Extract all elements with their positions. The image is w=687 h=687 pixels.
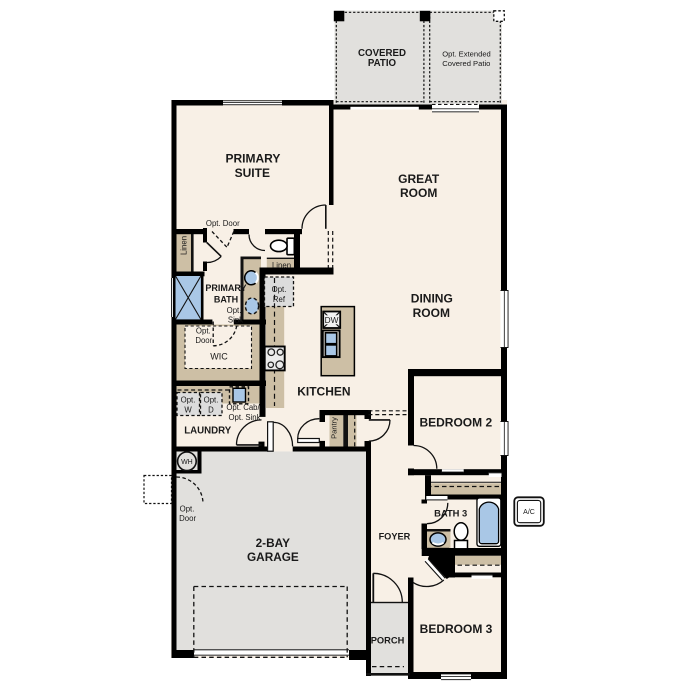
svg-text:GREAT: GREAT: [398, 172, 440, 186]
svg-text:Ref: Ref: [273, 295, 286, 304]
svg-text:Opt.: Opt.: [272, 285, 287, 294]
svg-text:Opt. Sink: Opt. Sink: [228, 413, 260, 422]
svg-text:FOYER: FOYER: [379, 532, 411, 542]
svg-text:W: W: [184, 406, 192, 415]
svg-text:SUITE: SUITE: [235, 166, 270, 180]
svg-text:PRIMARY: PRIMARY: [205, 283, 246, 293]
svg-text:Pantry: Pantry: [330, 417, 339, 439]
svg-text:BEDROOM 2: BEDROOM 2: [419, 416, 492, 430]
svg-text:Opt. Door: Opt. Door: [206, 219, 240, 228]
svg-text:D: D: [208, 406, 214, 415]
svg-text:Opt. Cab/: Opt. Cab/: [226, 403, 260, 412]
svg-text:PRIMARY: PRIMARY: [225, 152, 280, 166]
svg-text:DINING: DINING: [411, 292, 453, 306]
svg-text:Opt. Extended: Opt. Extended: [442, 49, 491, 58]
svg-text:Opt.: Opt.: [196, 326, 211, 335]
svg-text:BEDROOM 3: BEDROOM 3: [420, 622, 493, 636]
svg-text:ROOM: ROOM: [413, 306, 450, 320]
svg-text:WH: WH: [181, 459, 193, 466]
svg-text:Sink: Sink: [228, 316, 243, 325]
svg-text:2-BAY: 2-BAY: [256, 536, 290, 550]
svg-text:Linen: Linen: [180, 236, 189, 255]
svg-text:KITCHEN: KITCHEN: [297, 384, 350, 398]
svg-text:Door: Door: [179, 514, 196, 523]
svg-text:GARAGE: GARAGE: [247, 550, 299, 564]
svg-text:Door: Door: [195, 336, 212, 345]
svg-text:Covered Patio: Covered Patio: [442, 59, 490, 68]
svg-text:A/C: A/C: [523, 509, 535, 516]
svg-text:Opt.: Opt.: [227, 306, 242, 315]
svg-text:BATH 3: BATH 3: [434, 508, 467, 519]
svg-text:Opt.: Opt.: [181, 396, 196, 405]
svg-text:ROOM: ROOM: [400, 186, 437, 200]
svg-text:WIC: WIC: [210, 352, 228, 362]
svg-text:LAUNDRY: LAUNDRY: [184, 426, 232, 437]
svg-text:Opt.: Opt.: [180, 505, 195, 514]
svg-text:Linen: Linen: [272, 261, 291, 270]
svg-text:Opt.: Opt.: [204, 396, 219, 405]
svg-text:BATH: BATH: [214, 295, 238, 305]
svg-text:PORCH: PORCH: [371, 636, 405, 646]
svg-text:DW: DW: [325, 315, 339, 325]
svg-text:PATIO: PATIO: [368, 58, 397, 69]
